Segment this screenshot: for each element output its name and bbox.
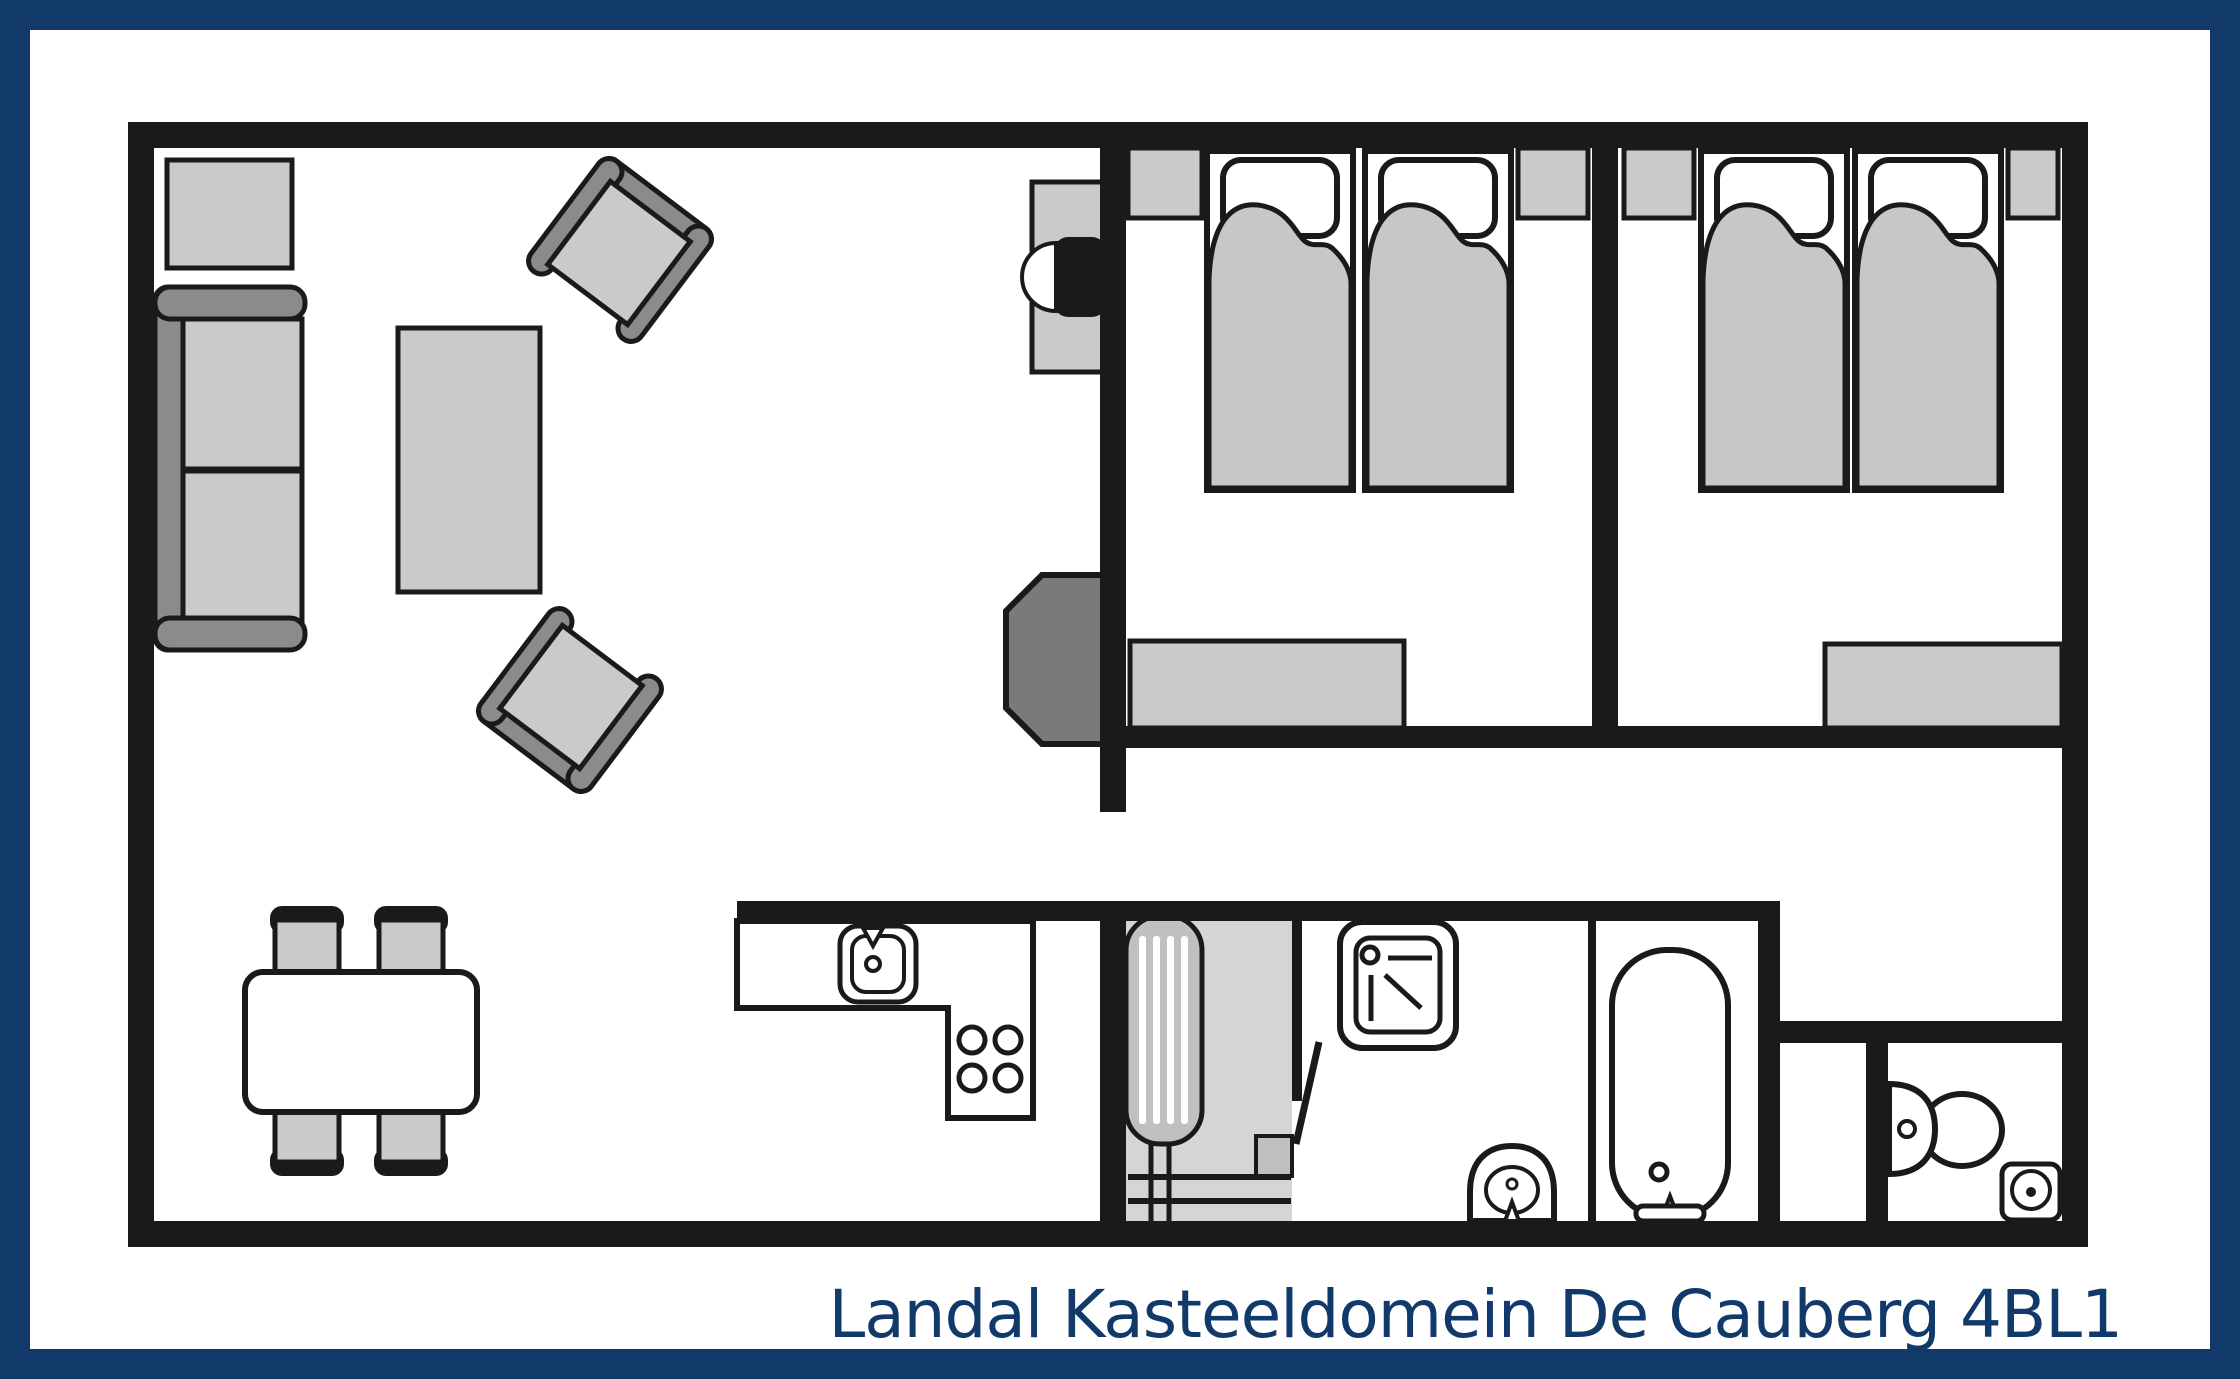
floor-plan-image: Landal Kasteeldomein De Cauberg 4BL1 — [0, 0, 2240, 1379]
bathtub-icon — [1612, 950, 1728, 1221]
dining-chair-icon — [270, 1106, 344, 1176]
toilet-icon — [1889, 1084, 2002, 1174]
wall-segment — [1780, 1021, 2062, 1043]
dining-chair-icon — [374, 906, 448, 976]
wall-segment — [1758, 901, 1780, 1221]
nightstand-icon — [2008, 148, 2058, 218]
shower-icon — [1340, 922, 1456, 1048]
wood-stove-icon — [1006, 575, 1110, 744]
step-icon — [1256, 1136, 1292, 1176]
bed-icon — [1365, 151, 1511, 490]
wall-segment — [2062, 122, 2088, 1247]
wall-segment — [128, 122, 2088, 148]
bench-icon — [1130, 641, 1404, 728]
sink-icon — [840, 926, 916, 1002]
wall-segment — [1866, 1043, 1888, 1221]
washbasin-icon — [1470, 1146, 1554, 1221]
dining-chair-icon — [270, 906, 344, 976]
tv-cabinet-icon — [1022, 182, 1112, 372]
boiler-icon — [1126, 916, 1202, 1144]
dining-chair-icon — [374, 1106, 448, 1176]
wall-segment — [1100, 726, 2062, 748]
wall-segment — [1100, 901, 1126, 1221]
wall-segment — [128, 1221, 2088, 1247]
nightstand-icon — [1518, 148, 1588, 218]
dining-table-icon — [245, 972, 477, 1112]
wall-segment — [1100, 148, 1126, 812]
sofa-icon — [155, 287, 305, 650]
bed-icon — [1207, 151, 1353, 490]
plan-title: Landal Kasteeldomein De Cauberg 4BL1 — [828, 1280, 2122, 1349]
wall-segment — [1592, 148, 1618, 726]
floor-plan — [0, 0, 2240, 1379]
bed-icon — [1701, 151, 1847, 490]
wall-segment — [737, 901, 1780, 921]
bench-icon — [1825, 644, 2062, 728]
bed-icon — [1855, 151, 2001, 490]
wall-segment — [1292, 921, 1302, 1101]
coffee-table-icon — [398, 328, 540, 592]
corner-basin-icon — [2002, 1164, 2060, 1220]
nightstand-icon — [1128, 148, 1202, 218]
wall-segment — [1588, 921, 1596, 1221]
tv-icon — [1054, 237, 1106, 317]
nightstand-icon — [1624, 148, 1694, 218]
sideboard-icon — [167, 160, 292, 268]
wall-segment — [128, 122, 154, 1247]
